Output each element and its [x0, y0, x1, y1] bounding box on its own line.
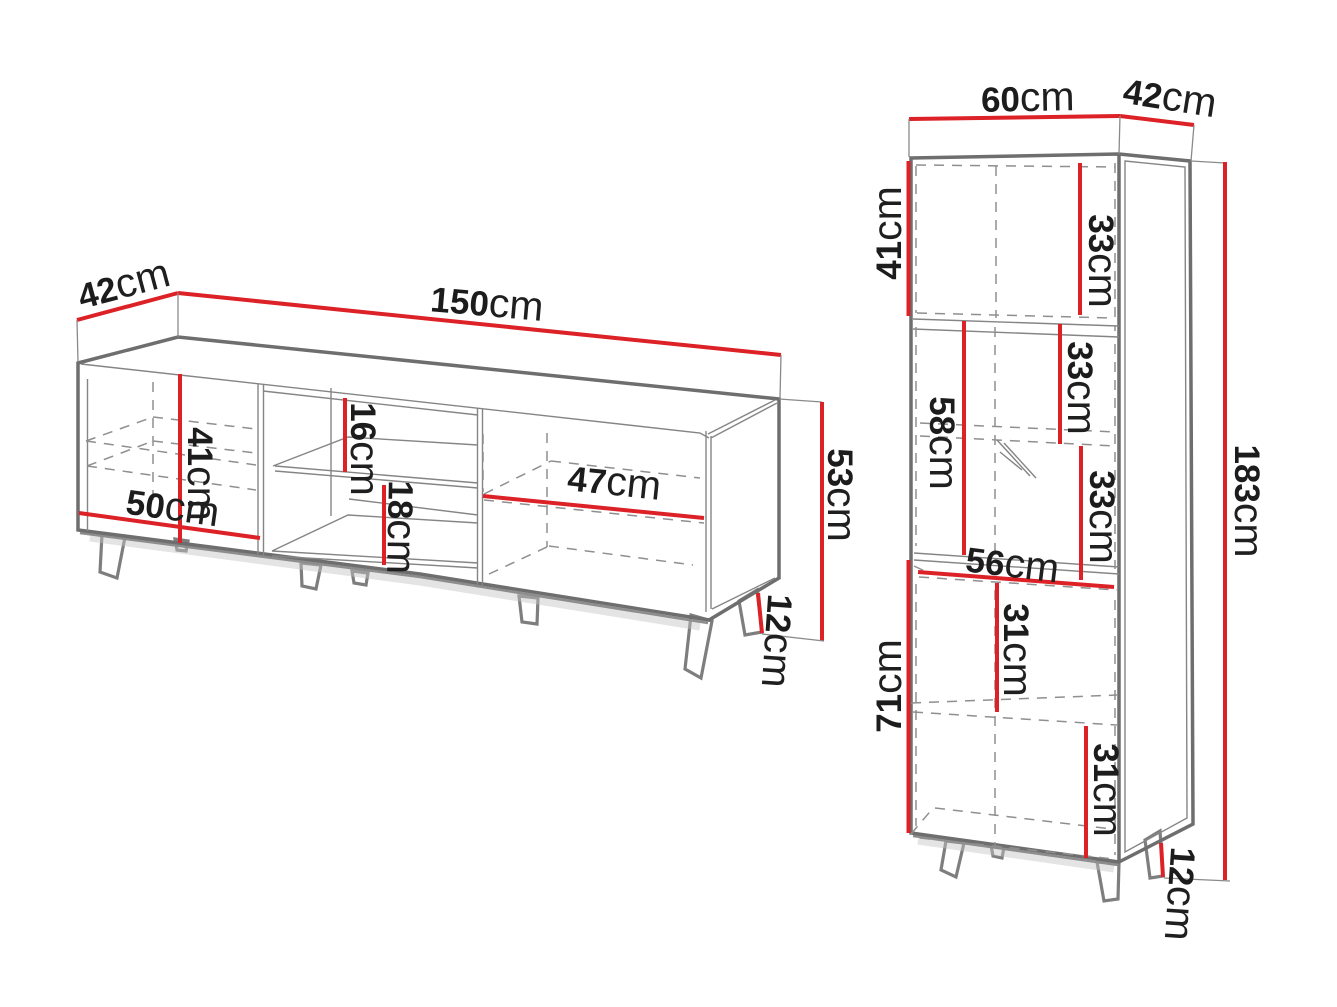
svg-text:12cm: 12cm — [753, 593, 805, 690]
svg-text:33cm: 33cm — [1059, 341, 1105, 435]
svg-text:41cm: 41cm — [864, 186, 910, 280]
svg-text:53cm: 53cm — [819, 448, 865, 542]
svg-text:31cm: 31cm — [995, 603, 1041, 697]
svg-text:58cm: 58cm — [921, 396, 967, 490]
svg-text:18cm: 18cm — [378, 480, 426, 574]
svg-text:71cm: 71cm — [864, 639, 910, 733]
svg-text:33cm: 33cm — [1081, 470, 1127, 564]
svg-text:33cm: 33cm — [1080, 214, 1126, 308]
svg-text:31cm: 31cm — [1085, 743, 1131, 837]
svg-text:12cm: 12cm — [1156, 846, 1208, 943]
svg-text:183cm: 183cm — [1226, 444, 1272, 557]
svg-text:60cm: 60cm — [981, 73, 1075, 121]
